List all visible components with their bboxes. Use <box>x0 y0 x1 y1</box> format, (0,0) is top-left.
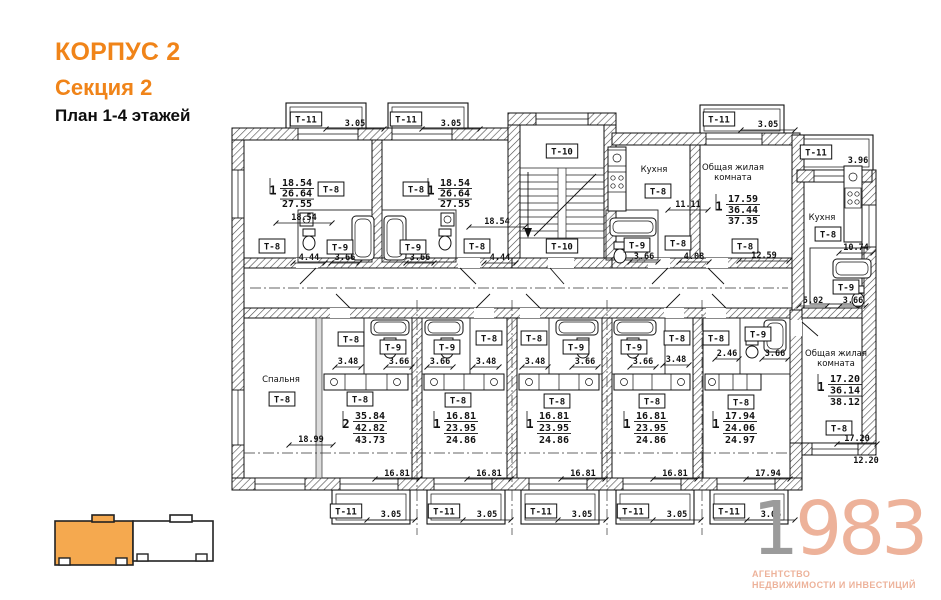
svg-text:Т-8: Т-8 <box>264 242 280 252</box>
room-type-label: Т-9 <box>624 238 650 252</box>
svg-text:3.05: 3.05 <box>667 510 687 520</box>
dimension-label: 3.48 <box>520 357 551 370</box>
svg-text:17.94: 17.94 <box>755 469 781 479</box>
room-type-label: Т-11 <box>703 112 734 126</box>
svg-text:3.48: 3.48 <box>666 355 686 365</box>
room-count-prefix: 1 <box>623 417 630 431</box>
room-type-label: Т-8 <box>665 236 691 250</box>
toilet-icon <box>439 229 451 250</box>
room-type-label: Т-9 <box>621 340 647 354</box>
svg-text:Т-9: Т-9 <box>439 343 455 353</box>
svg-text:3.48: 3.48 <box>525 357 545 367</box>
room-type-label: Т-8 <box>544 394 570 408</box>
room-name: Спальня <box>262 375 300 385</box>
room-type-label: Т-11 <box>800 145 831 159</box>
room-type-label: Т-8 <box>521 331 547 345</box>
logo-tagline-line2: НЕДВИЖИМОСТИ И ИНВЕСТИЦИЙ <box>752 581 922 590</box>
svg-text:3.96: 3.96 <box>848 156 868 166</box>
room-count-prefix: 1 <box>817 380 824 394</box>
area-stack: 18.5426.6427.551 <box>427 178 472 210</box>
svg-text:Т-8: Т-8 <box>352 395 368 405</box>
room-type-label: Т-10 <box>546 144 577 158</box>
svg-text:4.44: 4.44 <box>490 253 510 263</box>
svg-text:3.05: 3.05 <box>441 119 461 129</box>
svg-text:Т-8: Т-8 <box>323 185 339 195</box>
room-type-label: Т-9 <box>434 340 460 354</box>
room-type-label: Т-8 <box>639 394 665 408</box>
area-stack: 16.8123.9524.861 <box>623 411 668 446</box>
svg-text:Т-8: Т-8 <box>733 398 749 408</box>
svg-text:Т-11: Т-11 <box>530 507 552 517</box>
svg-text:16.81: 16.81 <box>570 469 596 479</box>
room-type-label: Т-8 <box>464 239 490 253</box>
kitchenette-counter <box>324 374 408 390</box>
svg-text:18.54: 18.54 <box>282 178 312 189</box>
room-count-prefix: 1 <box>715 200 722 214</box>
svg-text:3.66: 3.66 <box>335 253 355 263</box>
dimension-label: 3.66 <box>425 357 456 370</box>
dimension-label: 3.05 <box>651 510 704 523</box>
room-type-label: Т-11 <box>428 504 459 518</box>
room-type-label: Т-8 <box>318 182 344 196</box>
svg-text:12.59: 12.59 <box>751 251 777 261</box>
area-stack: 17.2036.1438.121 <box>817 374 862 408</box>
svg-text:26.64: 26.64 <box>440 189 470 200</box>
room-type-label: Т-8 <box>347 392 373 406</box>
room-name: Кухня <box>809 213 836 223</box>
room-type-label: Т-9 <box>745 327 771 341</box>
svg-text:3.05: 3.05 <box>381 510 401 520</box>
room-type-label: Т-10 <box>546 239 577 253</box>
section-title: Секция 2 <box>55 77 190 99</box>
svg-text:Т-11: Т-11 <box>622 507 644 517</box>
room-type-label: Т-11 <box>617 504 648 518</box>
svg-text:Т-9: Т-9 <box>750 330 766 340</box>
svg-text:5.02: 5.02 <box>803 296 823 306</box>
svg-text:Т-9: Т-9 <box>629 241 645 251</box>
kitchen-counter <box>608 147 626 211</box>
room-count-prefix: 1 <box>433 417 440 431</box>
svg-text:Т-8: Т-8 <box>274 395 290 405</box>
kitchenette-counter <box>519 374 599 390</box>
svg-text:Т-11: Т-11 <box>433 507 455 517</box>
area-stack: 17.5936.4437.351 <box>715 194 760 227</box>
svg-text:38.12: 38.12 <box>830 397 860 408</box>
room-type-label: Т-8 <box>259 239 285 253</box>
svg-text:Т-8: Т-8 <box>650 187 666 197</box>
room-type-label: Т-8 <box>445 393 471 407</box>
svg-text:Т-8: Т-8 <box>450 396 466 406</box>
svg-text:27.55: 27.55 <box>282 199 312 210</box>
svg-text:42.82: 42.82 <box>355 423 385 434</box>
svg-text:Т-8: Т-8 <box>820 230 836 240</box>
svg-text:Т-10: Т-10 <box>551 242 573 252</box>
dimension-label: 3.66 <box>760 349 791 362</box>
svg-text:16.81: 16.81 <box>384 469 410 479</box>
svg-text:Т-8: Т-8 <box>670 239 686 249</box>
svg-text:3.48: 3.48 <box>338 357 358 367</box>
dimension-label: 12.20 <box>853 456 879 466</box>
svg-text:Т-11: Т-11 <box>295 115 317 125</box>
svg-text:3.05: 3.05 <box>758 120 778 130</box>
svg-text:24.86: 24.86 <box>636 435 666 446</box>
svg-text:23.95: 23.95 <box>636 423 666 434</box>
svg-text:24.86: 24.86 <box>539 435 569 446</box>
room-count-prefix: 2 <box>342 417 349 431</box>
svg-text:11.11: 11.11 <box>675 200 701 210</box>
room-name: комната <box>714 173 752 183</box>
svg-text:18.99: 18.99 <box>298 435 324 445</box>
svg-text:Т-8: Т-8 <box>343 335 359 345</box>
svg-text:Т-8: Т-8 <box>526 334 542 344</box>
toilet-icon <box>303 229 315 250</box>
svg-text:Т-11: Т-11 <box>805 148 827 158</box>
agency-logo: 1983 АГЕНТСТВО НЕДВИЖИМОСТИ И ИНВЕСТИЦИЙ <box>752 492 922 590</box>
room-name: Общая жилая <box>702 163 764 173</box>
svg-text:3.05: 3.05 <box>477 510 497 520</box>
title-block: КОРПУС 2 Секция 2 План 1-4 этажей <box>55 40 190 124</box>
room-name: Общая жилая <box>805 349 867 359</box>
svg-text:4.44: 4.44 <box>299 253 319 263</box>
svg-text:Т-11: Т-11 <box>335 507 357 517</box>
svg-text:Т-8: Т-8 <box>831 424 847 434</box>
room-type-label: Т-9 <box>563 340 589 354</box>
area-stack: 16.8123.9524.861 <box>433 411 478 446</box>
svg-text:Т-11: Т-11 <box>718 507 740 517</box>
svg-text:10.74: 10.74 <box>843 243 869 253</box>
dimension-label: 3.05 <box>739 120 798 133</box>
svg-text:3.66: 3.66 <box>430 357 450 367</box>
svg-text:3.66: 3.66 <box>633 357 653 367</box>
kitchen-counter <box>844 166 862 242</box>
room-type-label: Т-8 <box>728 395 754 409</box>
svg-text:Т-8: Т-8 <box>549 397 565 407</box>
svg-text:17.59: 17.59 <box>728 194 758 205</box>
room-type-label: Т-11 <box>713 504 744 518</box>
svg-text:35.84: 35.84 <box>355 411 385 422</box>
room-type-label: Т-8 <box>403 182 429 196</box>
room-type-label: Т-9 <box>400 240 426 254</box>
room-type-label: Т-8 <box>476 331 502 345</box>
keymap-section-highlighted <box>55 515 133 565</box>
plan-title: План 1-4 этажей <box>55 107 190 124</box>
svg-text:Т-8: Т-8 <box>408 185 424 195</box>
svg-text:3.66: 3.66 <box>843 296 863 306</box>
svg-text:36.14: 36.14 <box>830 386 860 397</box>
room-name: Кухня <box>641 165 668 175</box>
svg-text:17.20: 17.20 <box>830 374 860 385</box>
dimension-label: 11.11 <box>666 200 711 213</box>
room-type-label: Т-11 <box>290 112 321 126</box>
svg-text:Т-11: Т-11 <box>395 115 417 125</box>
area-stack: 35.8442.8243.732 <box>342 411 387 446</box>
svg-text:3.66: 3.66 <box>575 357 595 367</box>
svg-text:Т-8: Т-8 <box>469 242 485 252</box>
room-type-label: Т-11 <box>330 504 361 518</box>
svg-text:3.66: 3.66 <box>389 357 409 367</box>
dimension-label: 3.05 <box>556 510 609 523</box>
svg-text:18.54: 18.54 <box>440 178 470 189</box>
kitchenette-counter <box>705 374 761 390</box>
logo-tagline: АГЕНТСТВО НЕДВИЖИМОСТИ И ИНВЕСТИЦИЙ <box>752 570 922 590</box>
svg-text:Т-8: Т-8 <box>708 334 724 344</box>
svg-text:18.54: 18.54 <box>484 217 510 227</box>
room-type-label: Т-8 <box>338 332 364 346</box>
room-count-prefix: 1 <box>269 183 276 197</box>
staircase <box>520 168 604 238</box>
svg-text:Т-10: Т-10 <box>551 147 573 157</box>
room-type-label: Т-8 <box>269 392 295 406</box>
room-count-prefix: 1 <box>526 417 533 431</box>
logo-year: 1983 <box>752 492 922 566</box>
svg-text:24.06: 24.06 <box>725 423 755 434</box>
svg-text:3.05: 3.05 <box>572 510 592 520</box>
svg-text:17.94: 17.94 <box>725 411 755 422</box>
svg-text:36.44: 36.44 <box>728 205 758 216</box>
sink-icon <box>441 213 454 226</box>
svg-text:37.35: 37.35 <box>728 216 758 227</box>
dimension-label: 18.99 <box>287 435 336 448</box>
svg-text:4.08: 4.08 <box>684 252 704 262</box>
svg-text:16.81: 16.81 <box>446 411 476 422</box>
svg-text:27.55: 27.55 <box>440 199 470 210</box>
logo-digit-1: 1 <box>752 486 795 572</box>
svg-text:Т-8: Т-8 <box>644 397 660 407</box>
dimension-label: 3.48 <box>471 357 502 370</box>
dimension-label: 3.66 <box>570 357 601 370</box>
room-type-label: Т-8 <box>645 184 671 198</box>
keymap-section-other <box>133 515 213 561</box>
svg-text:16.81: 16.81 <box>636 411 666 422</box>
svg-text:26.64: 26.64 <box>282 189 312 200</box>
dimension-label: 3.66 <box>628 357 659 370</box>
svg-text:Т-9: Т-9 <box>568 343 584 353</box>
svg-text:3.66: 3.66 <box>410 253 430 263</box>
svg-text:16.81: 16.81 <box>539 411 569 422</box>
svg-text:3.66: 3.66 <box>634 252 654 262</box>
svg-text:12.20: 12.20 <box>853 456 879 466</box>
svg-text:Т-9: Т-9 <box>385 343 401 353</box>
area-stack: 16.8123.9524.861 <box>526 411 571 446</box>
svg-text:Т-9: Т-9 <box>838 283 854 293</box>
dimension-label: 2.46 <box>713 349 742 362</box>
dimension-label: 3.66 <box>384 357 415 370</box>
svg-text:16.81: 16.81 <box>662 469 688 479</box>
svg-text:3.05: 3.05 <box>345 119 365 129</box>
room-type-label: Т-9 <box>380 340 406 354</box>
svg-text:Т-11: Т-11 <box>708 115 730 125</box>
svg-text:Т-9: Т-9 <box>405 243 421 253</box>
dimension-label: 3.96 <box>848 156 868 166</box>
kitchenette-counter <box>424 374 504 390</box>
svg-text:3.66: 3.66 <box>765 349 785 359</box>
svg-text:24.86: 24.86 <box>446 435 476 446</box>
building-title: КОРПУС 2 <box>55 40 190 65</box>
svg-text:23.95: 23.95 <box>446 423 476 434</box>
room-type-label: Т-11 <box>525 504 556 518</box>
room-type-label: Т-8 <box>703 331 729 345</box>
svg-text:16.81: 16.81 <box>476 469 502 479</box>
room-type-label: Т-11 <box>390 112 421 126</box>
area-stack: 18.5426.6427.551 <box>269 178 314 210</box>
svg-text:Т-9: Т-9 <box>626 343 642 353</box>
svg-text:Т-8: Т-8 <box>481 334 497 344</box>
svg-text:2.46: 2.46 <box>717 349 737 359</box>
area-stack: 17.9424.0624.971 <box>712 411 757 446</box>
svg-text:24.97: 24.97 <box>725 435 755 446</box>
dimension-label: 3.48 <box>333 357 364 370</box>
room-type-label: Т-9 <box>833 280 859 294</box>
svg-text:23.95: 23.95 <box>539 423 569 434</box>
svg-text:43.73: 43.73 <box>355 435 385 446</box>
svg-text:Т-9: Т-9 <box>332 243 348 253</box>
svg-text:18.54: 18.54 <box>291 213 317 223</box>
logo-digits-983: 983 <box>795 486 924 572</box>
room-type-label: Т-8 <box>815 227 841 241</box>
room-name: комната <box>817 359 855 369</box>
kitchenette-counter <box>614 374 690 390</box>
room-type-label: Т-9 <box>327 240 353 254</box>
section-keymap <box>52 512 222 574</box>
svg-text:3.48: 3.48 <box>476 357 496 367</box>
room-type-label: Т-8 <box>664 331 690 345</box>
svg-text:17.20: 17.20 <box>844 434 870 444</box>
room-count-prefix: 1 <box>712 417 719 431</box>
room-type-label: Т-8 <box>826 421 852 435</box>
room-count-prefix: 1 <box>427 183 434 197</box>
svg-text:Т-8: Т-8 <box>669 334 685 344</box>
